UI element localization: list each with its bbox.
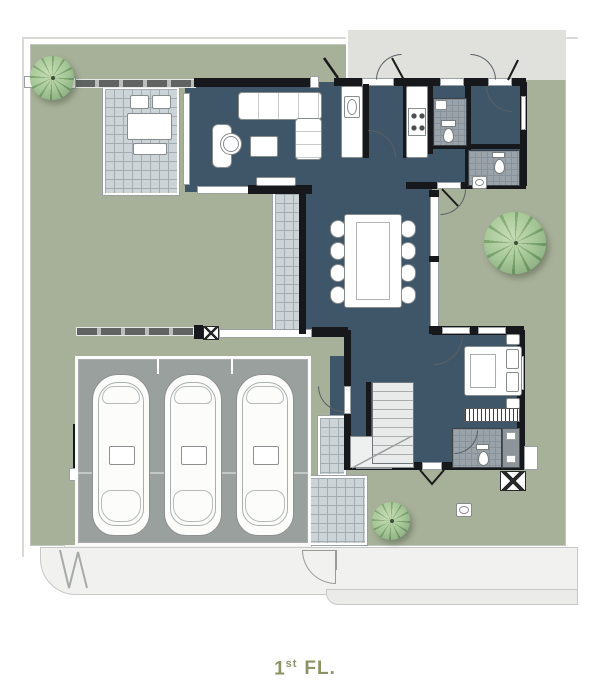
staircase [372,382,414,464]
door-gap-entry-2 [440,78,464,86]
floor-label-suffix: FL. [304,658,336,679]
closet-shelf [506,432,516,440]
garage-bay-line [157,356,159,374]
car-hood [245,490,285,522]
outdoor-unit [500,471,526,491]
door-gap-bath-yard [437,182,461,189]
window-wall-post-2 [429,256,439,262]
wall-living-top [194,78,314,87]
ac-nook [524,446,538,470]
coffee-table [250,136,278,157]
car [92,374,150,536]
terrace-bench [133,143,167,155]
window-bedroom-top-1 [442,327,470,334]
dining-table-top-line [356,222,390,300]
floor-plan-canvas: 1stFL. [0,0,600,696]
car-hood [101,490,141,522]
stove-cooktop [408,108,426,136]
car-hood [173,490,213,522]
floor-label-ordinal: st [286,658,298,670]
dresser [464,408,520,422]
car-rear-window [102,386,140,404]
window-bedroom-top-2 [478,327,506,334]
site-boundary-left-line [22,37,24,557]
back-patio [307,476,367,545]
master-bath-sink [456,503,472,517]
wc-toilet-tank [441,120,456,127]
side-patio-strip [318,416,346,476]
master-toilet-tank [476,444,489,450]
column-marker [203,326,219,340]
window-living-bottom [197,186,249,194]
window-wall-post-1 [429,190,439,197]
bed-pillow-2 [506,372,519,392]
dining-chair [400,242,416,260]
window-living-left [183,93,190,185]
car-windshield [109,446,135,465]
wc-basin [435,100,447,110]
floor-label: 1stFL. [240,658,370,680]
tv-console [256,177,296,186]
bed-pillow-1 [506,349,519,369]
dining-chair [400,264,416,282]
window-service-right [521,96,526,130]
dining-table [344,214,402,308]
car-windshield [181,446,207,465]
courtyard-wall [312,327,348,337]
bathroom-toilet-bowl [494,159,505,174]
garage-bay-line [231,356,233,374]
bathroom-sink [472,176,487,189]
bathroom-toilet-tank [492,152,505,158]
fence-middle-post [194,325,203,339]
dining-chair [400,220,416,238]
door-gap-wing-bottom [422,462,442,470]
wc-toilet-bowl [443,128,454,143]
nightstand-1 [506,334,520,345]
sofa-main [238,92,322,120]
floor-lamp [220,133,242,155]
sofa-chaise [295,118,322,160]
closet-shelf [506,455,516,463]
kitchen-sink [344,96,360,118]
tree [484,212,546,274]
tree [30,56,74,100]
wall-stair-rail [366,382,371,440]
car-windshield [253,446,279,465]
terrace-chair-1 [130,95,149,109]
terrace-chair-2 [152,95,171,109]
terrace-table [127,113,172,140]
car [164,374,222,536]
fence-middle [76,327,194,336]
wall-hall-left [299,190,306,334]
car [236,374,294,536]
door-gap-wing-left [344,386,351,414]
car-rear-window [246,386,284,404]
master-toilet-bowl [478,451,489,466]
tree [372,502,410,540]
car-rear-window [174,386,212,404]
fence-top [74,79,196,88]
floor-label-number: 1 [274,658,286,679]
post-living-top-right [310,76,319,88]
corridor-patio-strip [273,192,302,334]
dining-chair [400,286,416,304]
sidewalk-band [326,589,578,605]
bed-duvet-line [470,354,496,388]
closet [502,428,520,468]
